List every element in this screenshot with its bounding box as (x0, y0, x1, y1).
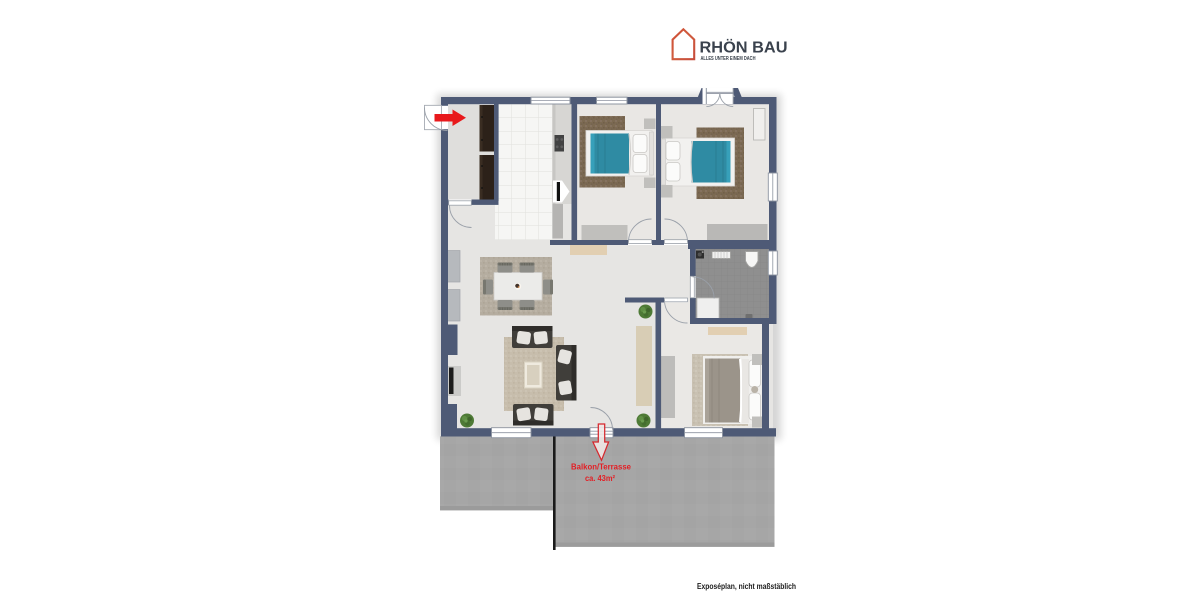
svg-text:RHÖN BAU: RHÖN BAU (700, 38, 788, 57)
svg-text:Exposéplan, nicht maßstäblich: Exposéplan, nicht maßstäblich (697, 582, 796, 591)
svg-text:ALLES UNTER EINEM DACH: ALLES UNTER EINEM DACH (701, 56, 756, 62)
svg-text:Balkon/Terrasse: Balkon/Terrasse (571, 462, 631, 471)
svg-text:ca. 43m²: ca. 43m² (585, 474, 615, 483)
